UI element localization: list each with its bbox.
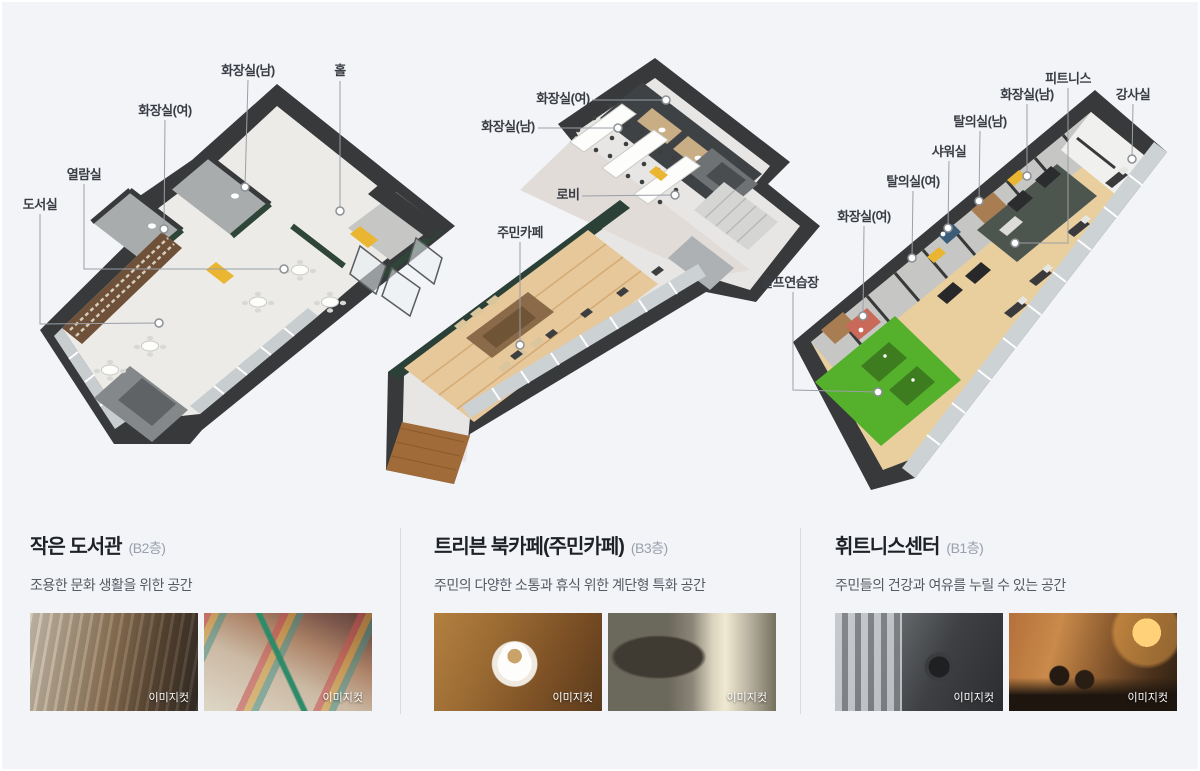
photo-child-writing: 이미지컷	[204, 613, 372, 711]
section-divider-1	[400, 528, 401, 714]
label-cafe-restroom-m: 화장실(남)	[481, 119, 535, 135]
label-fitness-restroom-m: 화장실(남)	[1000, 87, 1054, 103]
imagecut-badge: 이미지컷	[954, 689, 994, 705]
section-title: 작은 도서관(B2층)	[30, 534, 375, 561]
section-title: 휘트니스센터(B1층)	[835, 534, 1180, 561]
label-fitness-fitness: 피트니스	[1045, 71, 1091, 87]
label-library-doseosil: 도서실	[23, 197, 57, 213]
section-title: 트리븐 북카페(주민카페)(B3층)	[434, 534, 779, 561]
label-fitness-golf: 골프연습장	[761, 275, 818, 291]
section-photos: 이미지컷 이미지컷	[835, 613, 1180, 711]
label-cafe-lobby: 로비	[557, 187, 580, 203]
section-description: 주민들의 건강과 여유를 누릴 수 있는 공간	[835, 576, 1180, 594]
section-photos: 이미지컷 이미지컷	[434, 613, 779, 711]
imagecut-badge: 이미지컷	[1128, 689, 1168, 705]
photo-coffee-cup: 이미지컷	[434, 613, 602, 711]
label-library-restroom-w: 화장실(여)	[138, 103, 192, 119]
label-cafe-restroom-w: 화장실(여)	[536, 91, 590, 107]
imagecut-badge: 이미지컷	[323, 689, 363, 705]
section-floor-tag: (B3층)	[631, 540, 668, 556]
section-library: 작은 도서관(B2층) 조용한 문화 생활을 위한 공간 이미지컷 이미지컷	[30, 528, 375, 711]
photo-kettlebell: 이미지컷	[835, 613, 1003, 711]
section-description: 조용한 문화 생활을 위한 공간	[30, 576, 375, 594]
floorplan-fitness	[785, 80, 1180, 500]
section-fitness: 휘트니스센터(B1층) 주민들의 건강과 여유를 누릴 수 있는 공간 이미지컷…	[835, 528, 1180, 711]
section-title-text: 작은 도서관	[30, 536, 122, 558]
label-cafe-jumincafe: 주민카페	[497, 225, 543, 241]
label-library-restroom-m: 화장실(남)	[221, 63, 275, 79]
section-divider-2	[800, 528, 801, 714]
section-photos: 이미지컷 이미지컷	[30, 613, 375, 711]
section-title-text: 휘트니스센터	[835, 536, 939, 558]
floorplan-bookcafe	[370, 50, 820, 510]
label-fitness-shower: 샤워실	[932, 144, 966, 160]
photo-gym-training: 이미지컷	[1009, 613, 1177, 711]
imagecut-badge: 이미지컷	[553, 689, 593, 705]
label-fitness-instructor: 강사실	[1116, 87, 1150, 103]
imagecut-badge: 이미지컷	[149, 689, 189, 705]
section-floor-tag: (B2층)	[129, 540, 166, 556]
section-floor-tag: (B1층)	[946, 540, 983, 556]
label-fitness-restroom-w: 화장실(여)	[837, 209, 891, 225]
label-fitness-locker-m: 탈의실(남)	[953, 114, 1007, 130]
photo-cafe-window: 이미지컷	[608, 613, 776, 711]
imagecut-badge: 이미지컷	[727, 689, 767, 705]
section-bookcafe: 트리븐 북카페(주민카페)(B3층) 주민의 다양한 소통과 휴식 위한 계단형…	[434, 528, 779, 711]
label-library-yeollamsil: 열람실	[67, 167, 101, 183]
label-library-hall: 홀	[334, 63, 345, 79]
photo-library-shelves: 이미지컷	[30, 613, 198, 711]
label-fitness-locker-w: 탈의실(여)	[886, 174, 940, 190]
section-description: 주민의 다양한 소통과 휴식 위한 계단형 특화 공간	[434, 576, 779, 594]
community-facilities-page: 도서실 열람실 화장실(여) 화장실(남) 홀 화장실(여) 화장실(남) 로비…	[0, 0, 1200, 771]
section-title-text: 트리븐 북카페(주민카페)	[434, 536, 624, 558]
